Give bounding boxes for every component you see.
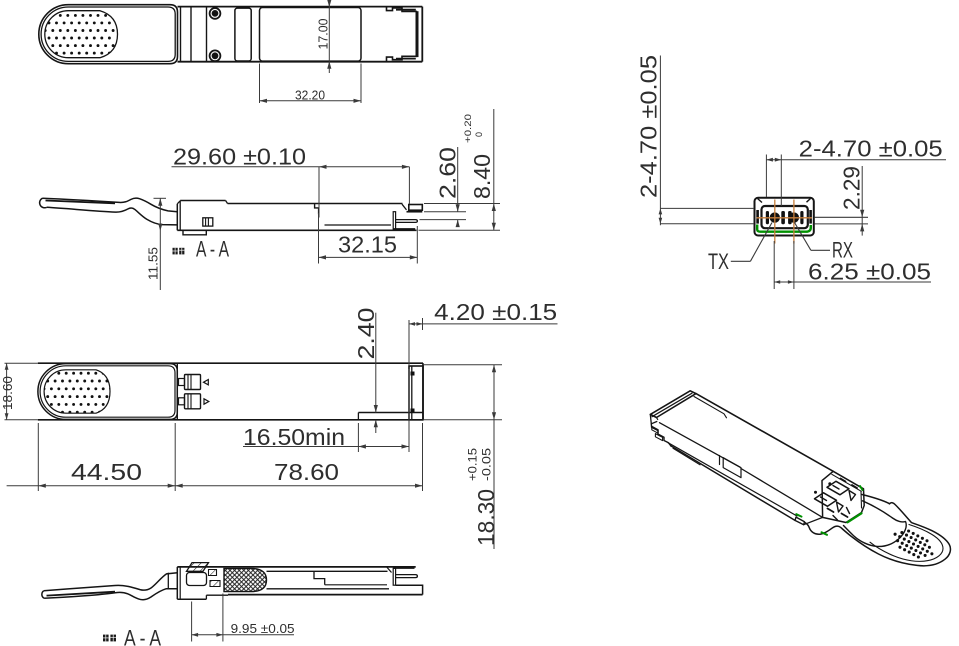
svg-text:-0.05: -0.05: [480, 448, 494, 481]
svg-text:2.60: 2.60: [435, 147, 461, 199]
svg-text:TX: TX: [708, 249, 729, 274]
svg-text:29.60 ±0.10: 29.60 ±0.10: [173, 143, 306, 169]
svg-text:11.55: 11.55: [146, 247, 161, 280]
svg-text:17.00: 17.00: [315, 19, 330, 50]
svg-text:2.40: 2.40: [353, 308, 379, 360]
svg-text:18.60: 18.60: [0, 376, 15, 410]
svg-text:16.50min: 16.50min: [243, 424, 345, 450]
svg-text:4.20 ±0.15: 4.20 ±0.15: [434, 299, 557, 325]
svg-text:32.20: 32.20: [295, 87, 325, 102]
svg-text:A - A: A - A: [196, 236, 229, 261]
svg-text:78.60: 78.60: [274, 459, 339, 485]
svg-text:A - A: A - A: [124, 625, 161, 646]
svg-text:2-4.70 ±0.05: 2-4.70 ±0.05: [799, 135, 943, 161]
svg-text:32.15: 32.15: [338, 231, 397, 257]
svg-text:8.40: 8.40: [469, 154, 495, 199]
svg-text:9.95 ±0.05: 9.95 ±0.05: [231, 622, 295, 636]
svg-text:+0.15: +0.15: [466, 448, 480, 481]
svg-text:18.30: 18.30: [473, 489, 499, 546]
svg-text:0: 0: [474, 132, 484, 137]
svg-text:6.25 ±0.05: 6.25 ±0.05: [808, 259, 931, 285]
svg-text:2-4.70 ±0.05: 2-4.70 ±0.05: [636, 55, 662, 198]
svg-text:2.29: 2.29: [839, 166, 865, 210]
svg-text:+0.20: +0.20: [463, 114, 473, 143]
svg-text:44.50: 44.50: [71, 459, 142, 485]
